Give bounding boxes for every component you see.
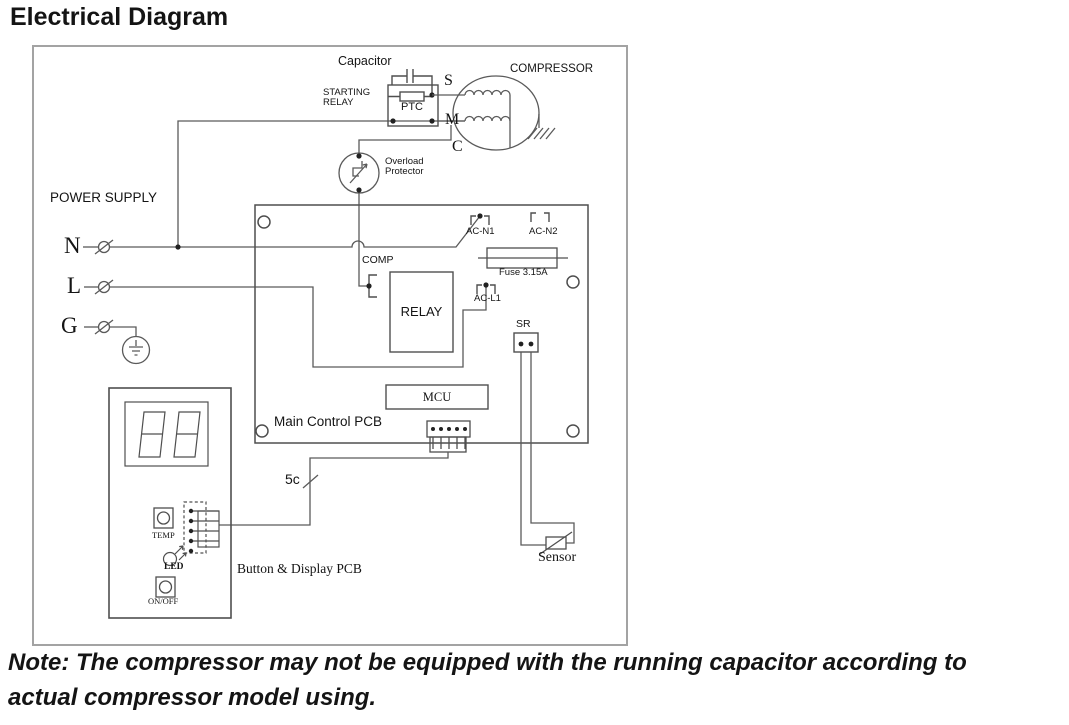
capacitor-label: Capacitor: [338, 55, 392, 68]
button-pcb-connector-dots: [189, 509, 193, 553]
fuse-symbol: [478, 248, 568, 268]
page-title: Electrical Diagram: [10, 5, 228, 30]
on-off-button-label: ON/OFF: [148, 597, 178, 606]
ac-n1-pin: [477, 213, 482, 218]
main-pcb-label: Main Control PCB: [274, 415, 382, 429]
terminal-label-l: L: [67, 274, 81, 297]
connector-sr: [514, 333, 538, 352]
pcb-5pin-dots: [431, 427, 467, 431]
terminal-label-g: G: [61, 314, 78, 337]
led-label: LED: [164, 563, 184, 573]
connector-ac-n2: [531, 213, 549, 222]
wire-ground: [110, 327, 150, 364]
schematic-canvas: [0, 0, 1069, 725]
cable-5c: [219, 452, 448, 525]
ac-n1-label: AC-N1: [466, 227, 495, 237]
starting-relay-symbol: [388, 69, 438, 126]
button-pcb-label: Button & Display PCB: [237, 562, 362, 576]
ac-l1-label: AC-L1: [474, 294, 501, 304]
terminal-label-n: N: [64, 234, 81, 257]
pcb-5pin-connector: [427, 421, 470, 452]
manual-page: Electrical Diagram POWER SUPPLY N L G Ca…: [0, 0, 1069, 725]
power-terminal-symbols: [83, 240, 113, 334]
mcu-label: MCU: [386, 391, 488, 404]
terminal-label-s: S: [444, 73, 453, 89]
overload-dot-bottom: [356, 187, 361, 192]
sensor-label: Sensor: [538, 551, 576, 565]
compressor-label: COMPRESSOR: [510, 64, 593, 76]
seven-segment-display: [125, 402, 208, 466]
overload-dot-top: [356, 153, 361, 158]
power-supply-heading: POWER SUPPLY: [50, 191, 157, 205]
terminal-label-c: C: [452, 139, 463, 155]
comp-label: COMP: [362, 255, 394, 266]
ac-n2-label: AC-N2: [529, 227, 558, 237]
note-line-2: actual compressor model using.: [8, 686, 376, 710]
wire-live: [110, 285, 486, 367]
sensor-wiring: [521, 352, 574, 545]
on-off-button: [156, 577, 175, 597]
temp-button: [154, 508, 173, 528]
fuse-label: Fuse 3.15A: [499, 268, 548, 278]
cable-count-label: 5c: [285, 472, 300, 486]
comp-pin: [366, 283, 371, 288]
relay-label: RELAY: [390, 305, 453, 318]
sr-label: SR: [516, 319, 531, 330]
temp-button-label: TEMP: [152, 531, 175, 540]
overload-label-2: Protector: [385, 167, 424, 177]
sr-pin-2: [529, 342, 534, 347]
main-pcb-board: [255, 205, 588, 443]
terminal-label-m: M: [445, 112, 459, 128]
starting-relay-label-2: RELAY: [323, 98, 353, 108]
sr-pin-1: [519, 342, 524, 347]
junction-dot: [175, 244, 180, 249]
button-pcb-connector: [184, 502, 219, 553]
note-line-1: Note: The compressor may not be equipped…: [8, 651, 967, 675]
ac-l1-pin: [483, 282, 488, 287]
ptc-label: PTC: [401, 102, 423, 113]
